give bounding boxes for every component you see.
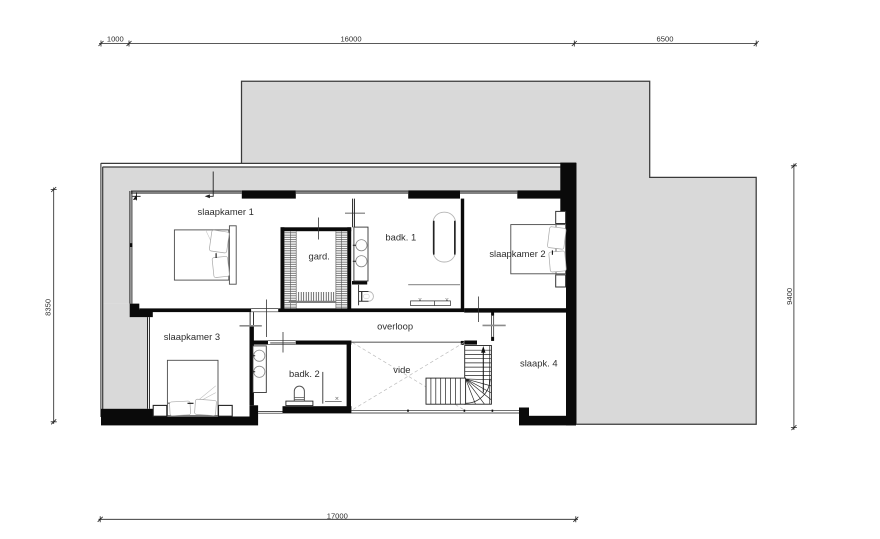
svg-text:slaapkamer 1: slaapkamer 1: [198, 206, 254, 217]
svg-text:6500: 6500: [657, 35, 674, 44]
svg-text:slaapk. 4: slaapk. 4: [520, 357, 558, 368]
svg-text:badk. 1: badk. 1: [385, 231, 416, 242]
svg-text:badk. 2: badk. 2: [289, 368, 320, 379]
svg-text:16000: 16000: [340, 35, 361, 44]
svg-text:vide: vide: [393, 364, 410, 375]
svg-text:17000: 17000: [327, 512, 348, 521]
svg-text:slaapkamer 2: slaapkamer 2: [489, 248, 545, 259]
svg-text:gard.: gard.: [309, 250, 330, 261]
svg-text:8350: 8350: [44, 299, 53, 316]
svg-text:slaapkamer 3: slaapkamer 3: [164, 331, 220, 342]
svg-text:overloop: overloop: [377, 321, 413, 332]
svg-text:9400: 9400: [785, 288, 794, 305]
svg-text:1000: 1000: [107, 35, 124, 44]
